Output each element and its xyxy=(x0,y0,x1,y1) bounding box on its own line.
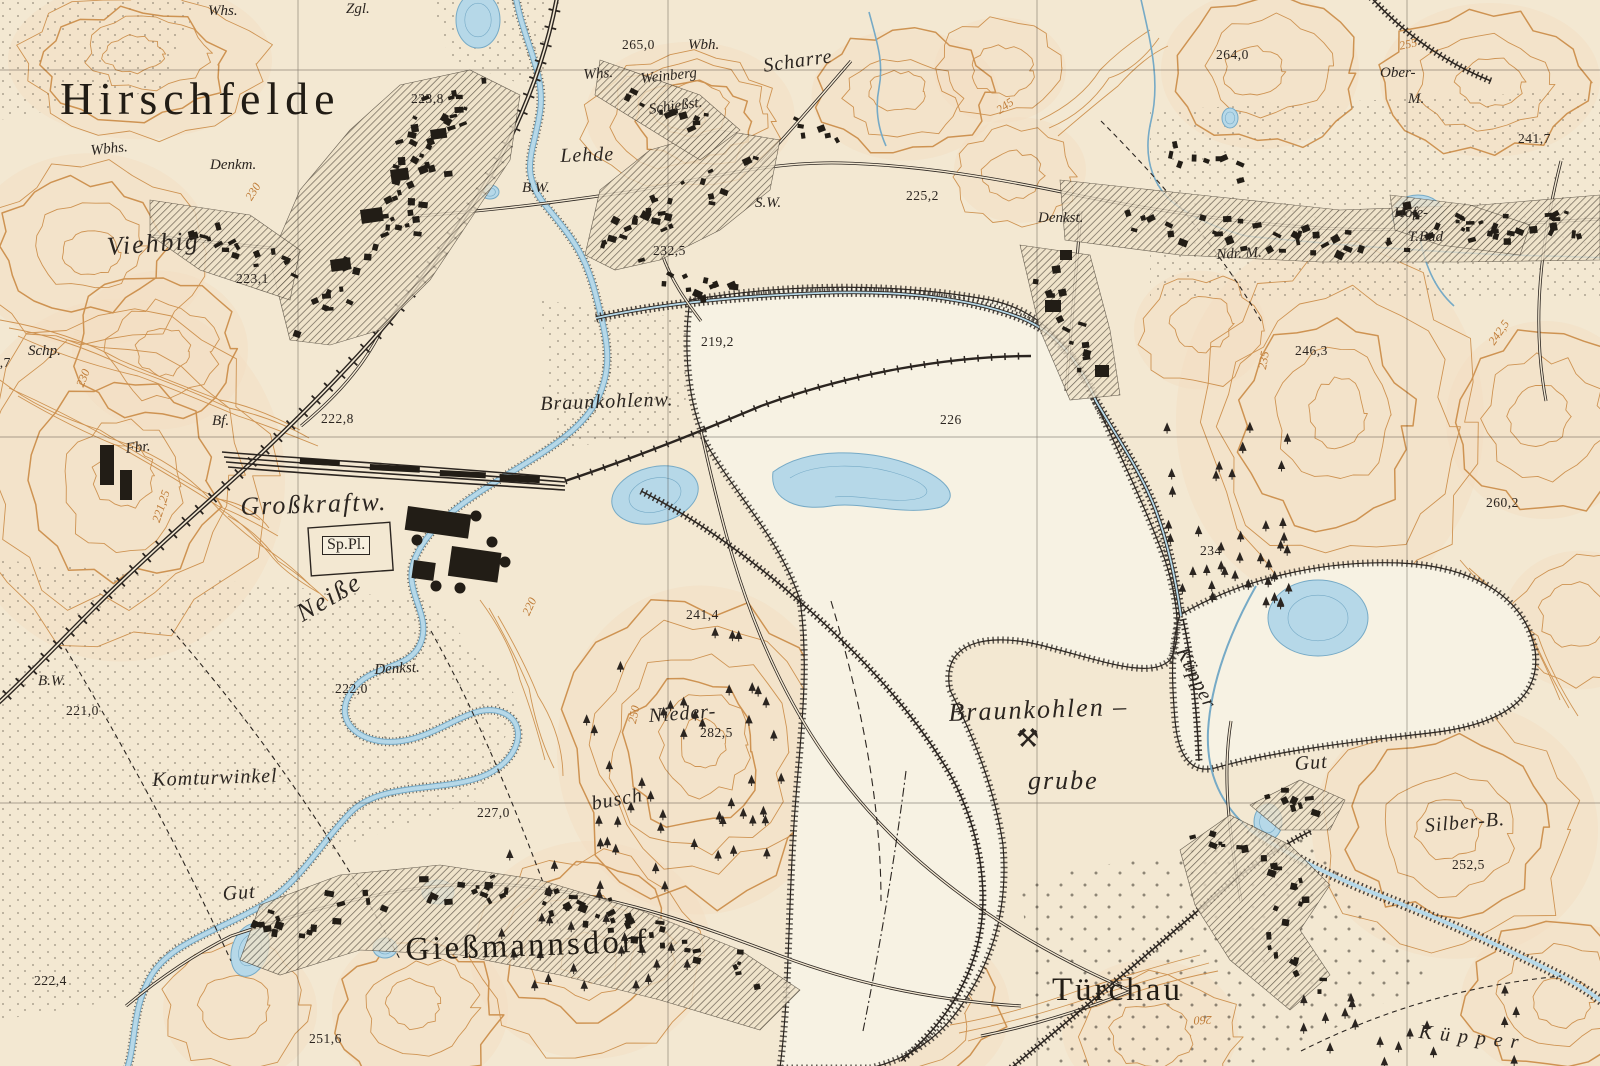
elev-222-0: 222,0 xyxy=(335,682,368,696)
label-weinberg: Weinberg xyxy=(640,66,698,87)
contour-230-b: 230 xyxy=(74,367,92,388)
contour-260: 260 xyxy=(1194,1014,1212,1027)
label-giessmannsdorf: Gießmannsdorf xyxy=(405,925,650,967)
elev-222-8: 222,8 xyxy=(321,412,354,426)
elev-223-8: 223,8 xyxy=(411,92,444,106)
label-bw-lehde: B.W. xyxy=(522,181,550,196)
contour-221-25: 221,25 xyxy=(150,489,172,524)
label-ober-m: M. xyxy=(1408,92,1424,107)
label-kuepper-stream: Küpper xyxy=(1172,644,1220,712)
elev-225-2: 225,2 xyxy=(906,189,939,203)
contour-250: 250 xyxy=(626,704,641,724)
elev-265-0: 265,0 xyxy=(622,38,655,52)
label-gut-east: Gut xyxy=(1294,752,1328,774)
elev-226: 226 xyxy=(940,413,962,427)
label-silber-b: Silber-B. xyxy=(1424,809,1506,836)
label-wbh: Wbh. xyxy=(688,38,719,53)
elev-227-0: 227,0 xyxy=(477,806,510,820)
label-whs-weinberg: Whs. xyxy=(583,66,614,83)
label-schiessstand: Schießst. xyxy=(648,96,703,118)
label-denkst-east: Denkst. xyxy=(1038,211,1083,226)
label-bw-sw: B.W. xyxy=(38,674,66,689)
label-busch: busch xyxy=(590,785,644,814)
map-canvas: HirschfeldeGießmannsdorfTürchauViehbigNe… xyxy=(0,0,1600,1066)
label-zgl: Zgl. xyxy=(346,2,370,17)
label-ndr-m: Ndr. M. xyxy=(1216,246,1262,263)
label-lehde: Lehde xyxy=(560,144,615,166)
label-hofe: Hofe- xyxy=(1394,206,1428,221)
label-tuerchau: Türchau xyxy=(1052,974,1183,1007)
label-grube: grube xyxy=(1028,768,1099,794)
label-schp: Schp. xyxy=(28,344,61,359)
label-scharre: Scharre xyxy=(762,46,834,75)
elev-219-2: 219,2 xyxy=(701,335,734,349)
contour-220: 220 xyxy=(520,596,538,617)
label-viehbig: Viehbig xyxy=(106,228,201,260)
contour-242-5: 242,5 xyxy=(1486,318,1511,347)
label-braunkohlen: Braunkohlen – xyxy=(948,694,1129,726)
elev-264-0: 264,0 xyxy=(1216,48,1249,62)
elev-234: 234 xyxy=(1200,544,1222,558)
label-braunkohlenwerk: Braunkohlenw. xyxy=(540,389,674,414)
label-mine-symbol: ⚒ xyxy=(1016,726,1039,752)
label-sw: S.W. xyxy=(755,196,781,211)
label-bf: Bf. xyxy=(212,414,229,429)
label-neisse-river: Neiße xyxy=(292,569,366,627)
elev-252-5: 252,5 xyxy=(1452,858,1485,872)
contour-230-a: 230 xyxy=(243,181,263,203)
contour-255: 255 xyxy=(1398,36,1418,51)
elev-246-3: 246,3 xyxy=(1295,344,1328,358)
map-labels: HirschfeldeGießmannsdorfTürchauViehbigNe… xyxy=(0,0,1600,1066)
label-grosskraftwerk: Großkraftw. xyxy=(240,489,388,520)
elev-282-5: 282,5 xyxy=(700,726,733,740)
elev-223-1: 223,1 xyxy=(236,272,269,286)
label-t-bad: T.Bad xyxy=(1408,230,1443,245)
label-hirschfelde: Hirschfelde xyxy=(60,76,341,122)
elev-244-7: 244,7 xyxy=(0,356,11,370)
label-sportplatz: Sp.Pl. xyxy=(322,536,370,555)
label-komturwinkel: Komturwinkel xyxy=(152,766,278,790)
elev-241-4: 241,4 xyxy=(686,608,719,622)
label-fbr: Fbr. xyxy=(125,439,151,456)
label-wbhs: Wbhs. xyxy=(90,140,128,159)
contour-245: 245 xyxy=(994,96,1016,116)
label-kuepper-bottom: Küpper xyxy=(1418,1022,1527,1053)
elev-232-5: 232,5 xyxy=(653,244,686,258)
label-denkm: Denkm. xyxy=(210,158,256,173)
contour-235: 235 xyxy=(1256,350,1271,370)
elev-241-7: 241,7 xyxy=(1518,132,1551,146)
label-nieder: Nieder- xyxy=(648,701,717,726)
elev-222-4: 222,4 xyxy=(34,974,67,988)
elev-221-0: 221,0 xyxy=(66,704,99,718)
label-whs-nw: Whs. xyxy=(208,4,238,19)
label-ober: Ober- xyxy=(1380,66,1416,81)
elev-251-6: 251,6 xyxy=(309,1032,342,1046)
elev-260-2: 260,2 xyxy=(1486,496,1519,510)
label-denkst-south: Denkst. xyxy=(374,661,420,678)
label-gut-west: Gut xyxy=(222,882,256,904)
